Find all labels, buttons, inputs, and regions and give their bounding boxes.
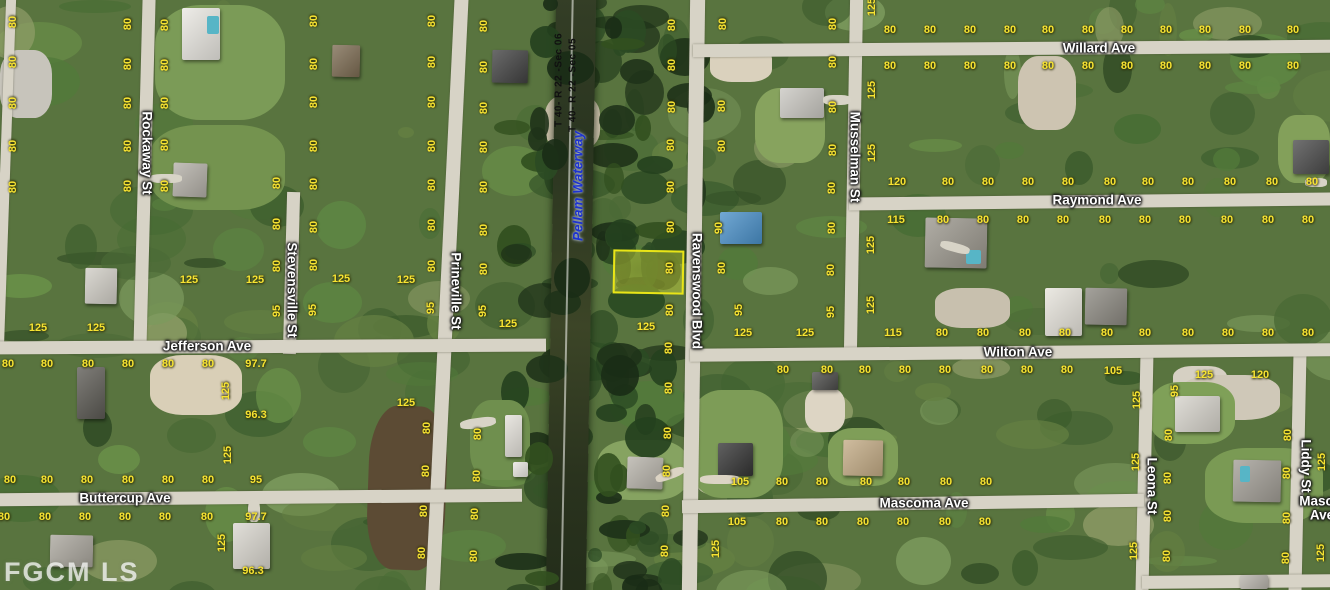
waterway-bank-tree <box>605 17 622 39</box>
lot-dimension-number: 80 <box>426 56 438 68</box>
vegetation-blob <box>668 88 741 140</box>
lot-dimension-number: 80 <box>7 140 19 152</box>
house <box>505 415 522 457</box>
lot-dimension-number: 80 <box>1262 327 1274 339</box>
lot-dimension-number: 125 <box>1128 542 1140 560</box>
vegetation-blob <box>961 563 999 584</box>
lot-dimension-number: 80 <box>1101 327 1113 339</box>
lot-dimension-number: 80 <box>664 304 676 316</box>
lot-dimension-number: 125 <box>222 446 234 464</box>
road-left-edge-road <box>0 0 16 352</box>
lot-dimension-number: 80 <box>1021 364 1033 376</box>
lot-dimension-number: 80 <box>1099 214 1111 226</box>
house <box>233 523 270 569</box>
vegetation-blob <box>603 109 622 138</box>
vegetation-blob <box>497 225 531 267</box>
lot-dimension-number: 80 <box>1004 60 1016 72</box>
vegetation-blob <box>996 420 1069 449</box>
street-label: Mascoma Ave <box>879 496 968 511</box>
lot-dimension-number: 105 <box>1104 365 1122 377</box>
lot-dimension-number: 80 <box>1287 60 1299 72</box>
lot-dimension-number: 80 <box>1262 214 1274 226</box>
vegetation-blob <box>1037 399 1072 431</box>
waterway-bank-tree <box>635 115 651 141</box>
lot-dimension-number: 125 <box>1316 453 1328 471</box>
vegetation-blob <box>1118 260 1189 288</box>
vegetation-blob <box>621 171 669 204</box>
lot-dimension-number: 80 <box>159 180 171 192</box>
vegetation-blob <box>167 418 216 453</box>
lot-dimension-number: 80 <box>777 364 789 376</box>
lot-dimension-number: 80 <box>478 20 490 32</box>
lot-dimension-number: 95 <box>250 474 262 486</box>
lot-dimension-number: 80 <box>426 179 438 191</box>
lot-dimension-number: 80 <box>1017 214 1029 226</box>
vegetation-blob <box>373 315 439 338</box>
lot-dimension-number: 96.3 <box>242 565 263 577</box>
mls-watermark: FGCM LS <box>4 557 140 588</box>
lot-dimension-number: 80 <box>421 422 433 434</box>
lot-dimension-number: 80 <box>964 24 976 36</box>
lot-dimension-number: 125 <box>866 144 878 162</box>
house <box>720 212 762 244</box>
lot-dimension-number: 80 <box>816 516 828 528</box>
lot-dimension-number: 95 <box>477 305 489 317</box>
vegetation-blob <box>65 224 97 269</box>
lot-dimension-number: 120 <box>1251 369 1269 381</box>
lot-dimension-number: 80 <box>308 140 320 152</box>
vegetation-blob <box>1144 556 1217 566</box>
lot-dimension-number: 80 <box>1222 327 1234 339</box>
lot-dimension-number: 80 <box>472 428 484 440</box>
lot-dimension-number: 125 <box>734 327 752 339</box>
house <box>77 367 105 419</box>
lot-dimension-number: 80 <box>664 262 676 274</box>
lot-dimension-number: 80 <box>1282 429 1294 441</box>
waterway-bank-tree <box>599 105 635 135</box>
lot-dimension-number: 125 <box>1130 453 1142 471</box>
lot-dimension-number: 80 <box>202 358 214 370</box>
vegetation-blob <box>649 349 677 386</box>
lot-dimension-number: 125 <box>637 321 655 333</box>
vegetation-blob <box>776 563 861 590</box>
lot-dimension-number: 95 <box>1169 385 1181 397</box>
lot-dimension-number: 80 <box>1062 176 1074 188</box>
lot-dimension-number: 80 <box>308 15 320 27</box>
vegetation-blob <box>119 272 184 325</box>
lot-dimension-number: 80 <box>122 180 134 192</box>
vegetation-blob <box>482 146 547 196</box>
lot-dimension-number: 125 <box>865 236 877 254</box>
vegetation-blob <box>1227 315 1290 332</box>
waterway-bank-tree <box>601 38 645 50</box>
lot-dimension-number: 80 <box>666 59 678 71</box>
section-township-label: T 40- R 22 -Sec 05 <box>568 38 579 132</box>
lot-dimension-number: 95 <box>271 305 283 317</box>
lot-dimension-number: 80 <box>1199 24 1211 36</box>
lot-dimension-number: 80 <box>271 218 283 230</box>
street-label: Leona St <box>1145 457 1160 514</box>
lot-dimension-number: 96.3 <box>245 409 266 421</box>
vegetation-blob <box>377 571 410 590</box>
lot-dimension-number: 125 <box>499 318 517 330</box>
lot-dimension-number: 80 <box>826 182 838 194</box>
vegetation-blob <box>609 196 631 220</box>
lot-dimension-number: 80 <box>308 96 320 108</box>
lot-dimension-number: 80 <box>416 547 428 559</box>
vegetation-blob <box>705 191 761 206</box>
lot-dimension-number: 80 <box>308 221 320 233</box>
vegetation-blob <box>639 531 659 545</box>
vegetation-blob <box>1114 114 1161 144</box>
street-label: Willard Ave <box>1063 41 1135 56</box>
lot-dimension-number: 105 <box>731 476 749 488</box>
street-label: Ave <box>1310 508 1330 523</box>
lot-dimension-number: 80 <box>1162 510 1174 522</box>
lot-dimension-number: 80 <box>1139 327 1151 339</box>
lot-dimension-number: 105 <box>728 516 746 528</box>
lot-dimension-number: 80 <box>159 139 171 151</box>
street-label: Musselman St <box>848 112 863 203</box>
lot-dimension-number: 80 <box>979 516 991 528</box>
lot-dimension-number: 125 <box>1131 391 1143 409</box>
lot-dimension-number: 80 <box>716 262 728 274</box>
vegetation-blob <box>352 576 414 590</box>
vegetation-blob <box>671 181 739 216</box>
vegetation-blob <box>607 515 633 552</box>
vegetation-blob <box>625 70 664 115</box>
lot-dimension-number: 80 <box>666 19 678 31</box>
street-label: Mascoma <box>1299 494 1330 509</box>
lot-dimension-number: 80 <box>1224 176 1236 188</box>
waterway-bank-tree <box>596 404 627 422</box>
vegetation-blob <box>625 89 644 131</box>
lot-dimension-number: 80 <box>1160 24 1172 36</box>
vegetation-blob <box>0 274 52 298</box>
lot-dimension-number: 80 <box>663 382 675 394</box>
vegetation-blob <box>596 342 629 382</box>
lot-dimension-number: 80 <box>426 96 438 108</box>
lot-dimension-number: 80 <box>1142 176 1154 188</box>
lot-dimension-number: 80 <box>39 511 51 523</box>
lot-dimension-number: 80 <box>468 550 480 562</box>
lot-dimension-number: 80 <box>162 358 174 370</box>
lot-dimension-number: 80 <box>827 144 839 156</box>
house <box>1085 288 1128 326</box>
lot-dimension-number: 80 <box>1019 327 1031 339</box>
lot-dimension-number: 80 <box>1182 176 1194 188</box>
vegetation-blob <box>922 397 961 423</box>
lot-dimension-number: 80 <box>666 101 678 113</box>
lot-dimension-number: 80 <box>426 15 438 27</box>
lot-dimension-number: 80 <box>122 58 134 70</box>
lot-dimension-number: 80 <box>665 181 677 193</box>
lot-dimension-number: 80 <box>661 465 673 477</box>
vegetation-blob <box>593 573 612 590</box>
vegetation-blob <box>1033 535 1108 560</box>
house <box>843 440 884 477</box>
lot-dimension-number: 80 <box>884 60 896 72</box>
lot-dimension-number: 80 <box>1121 24 1133 36</box>
vegetation-blob <box>915 383 951 401</box>
lot-dimension-number: 80 <box>2 358 14 370</box>
lot-dimension-number: 80 <box>202 474 214 486</box>
vegetation-blob <box>1012 550 1038 586</box>
lot-dimension-number: 125 <box>397 274 415 286</box>
vegetation-blob <box>611 384 638 409</box>
lot-dimension-number: 115 <box>887 214 905 226</box>
lot-dimension-number: 80 <box>7 16 19 28</box>
vegetation-blob <box>303 282 362 323</box>
ground-patch <box>150 125 285 210</box>
street-label: Wilton Ave <box>984 345 1053 360</box>
swimming-pool <box>1240 466 1250 482</box>
lot-dimension-number: 125 <box>180 274 198 286</box>
lot-dimension-number: 125 <box>216 534 228 552</box>
lot-dimension-number: 120 <box>888 176 906 188</box>
road-jefferson-ave <box>0 339 546 355</box>
lot-dimension-number: 80 <box>1082 60 1094 72</box>
vegetation-blob <box>1225 81 1281 94</box>
lot-dimension-number: 80 <box>1042 24 1054 36</box>
vegetation-blob <box>645 560 713 585</box>
waterway-bank-tree <box>601 355 639 396</box>
vegetation-blob <box>1201 147 1259 169</box>
lot-dimension-number: 80 <box>663 342 675 354</box>
vegetation-blob <box>746 576 822 590</box>
lot-dimension-number: 125 <box>332 273 350 285</box>
vegetation-blob <box>658 558 685 590</box>
vegetation-blob <box>743 267 798 295</box>
lot-dimension-number: 80 <box>308 58 320 70</box>
lot-dimension-number: 80 <box>659 545 671 557</box>
lot-dimension-number: 80 <box>1221 214 1233 226</box>
lot-dimension-number: 80 <box>660 505 672 517</box>
lot-dimension-number: 80 <box>1061 364 1073 376</box>
ground-patch <box>155 5 285 120</box>
lot-dimension-number: 80 <box>1281 512 1293 524</box>
lot-dimension-number: 80 <box>81 474 93 486</box>
lot-dimension-number: 80 <box>1182 327 1194 339</box>
lot-dimension-number: 80 <box>162 474 174 486</box>
waterway-bank-tree <box>630 349 650 376</box>
waterway-label: Pellam Waterway <box>571 131 586 241</box>
waterway-bank-tree <box>613 38 627 56</box>
lot-dimension-number: 97.7 <box>245 358 266 370</box>
vegetation-blob <box>1040 411 1113 445</box>
lot-dimension-number: 97.7 <box>245 511 266 523</box>
lot-dimension-number: 80 <box>41 474 53 486</box>
lot-dimension-number: 80 <box>478 102 490 114</box>
vegetation-blob <box>613 561 647 580</box>
house <box>1240 575 1268 589</box>
lot-dimension-number: 80 <box>1022 176 1034 188</box>
lot-dimension-number: 80 <box>980 476 992 488</box>
lot-dimension-number: 95 <box>307 304 319 316</box>
vegetation-blob <box>213 228 264 271</box>
street-label: Buttercup Ave <box>79 491 170 506</box>
vegetation-blob <box>605 225 622 248</box>
vegetation-blob <box>995 142 1024 159</box>
waterway-bank-tree <box>610 10 646 53</box>
waterway-bank-tree <box>637 156 673 174</box>
lot-dimension-number: 80 <box>1042 60 1054 72</box>
vegetation-blob <box>604 360 652 378</box>
vegetation-blob <box>588 143 638 168</box>
lot-dimension-number: 80 <box>159 19 171 31</box>
house <box>492 50 529 84</box>
lot-dimension-number: 80 <box>478 263 490 275</box>
lot-dimension-number: 80 <box>478 224 490 236</box>
street-label: Raymond Ave <box>1052 193 1141 208</box>
lot-dimension-number: 80 <box>478 181 490 193</box>
lot-dimension-number: 80 <box>1306 176 1318 188</box>
lot-dimension-number: 80 <box>420 465 432 477</box>
lot-dimension-number: 80 <box>816 476 828 488</box>
vegetation-blob <box>301 545 367 571</box>
lot-dimension-number: 80 <box>122 140 134 152</box>
vegetation-blob <box>606 349 629 403</box>
vegetation-blob <box>612 20 660 53</box>
waterway-bank-tree <box>597 343 642 370</box>
lot-dimension-number: 80 <box>159 97 171 109</box>
street-label: Stevensville St <box>285 242 300 337</box>
vegetation-blob <box>1135 0 1165 14</box>
vegetation-blob <box>768 551 827 590</box>
vegetation-blob <box>625 574 662 587</box>
lot-dimension-number: 80 <box>1104 176 1116 188</box>
lot-dimension-number: 80 <box>1179 214 1191 226</box>
lot-dimension-number: 80 <box>1059 327 1071 339</box>
lot-dimension-number: 125 <box>1315 544 1327 562</box>
lot-dimension-number: 80 <box>4 474 16 486</box>
lot-dimension-number: 80 <box>418 505 430 517</box>
ground-patch <box>805 388 845 432</box>
lot-dimension-number: 80 <box>977 214 989 226</box>
lot-dimension-number: 95 <box>425 302 437 314</box>
lot-dimension-number: 80 <box>982 176 994 188</box>
lot-dimension-number: 80 <box>857 516 869 528</box>
lot-dimension-number: 80 <box>1266 176 1278 188</box>
lot-dimension-number: 80 <box>939 364 951 376</box>
vegetation-blob <box>588 548 602 562</box>
lot-dimension-number: 125 <box>796 327 814 339</box>
lot-dimension-number: 80 <box>1239 60 1251 72</box>
lot-dimension-number: 95 <box>733 304 745 316</box>
ground-patch <box>935 288 1010 328</box>
lot-dimension-number: 80 <box>308 259 320 271</box>
lot-dimension-number: 80 <box>426 260 438 272</box>
lot-dimension-number: 80 <box>860 476 872 488</box>
lot-dimension-number: 80 <box>827 101 839 113</box>
waterway-bank-tree <box>606 219 639 252</box>
lot-dimension-number: 125 <box>220 382 232 400</box>
vegetation-blob <box>716 570 787 590</box>
lot-dimension-number: 80 <box>1280 552 1292 564</box>
vegetation-blob <box>494 120 530 135</box>
vegetation-blob <box>610 381 688 431</box>
street-label: Prineville St <box>449 252 464 329</box>
lot-dimension-number: 80 <box>82 358 94 370</box>
lot-dimension-number: 80 <box>1139 214 1151 226</box>
lot-dimension-number: 80 <box>1057 214 1069 226</box>
house <box>718 443 753 476</box>
vegetation-blob <box>398 127 414 138</box>
lot-dimension-number: 80 <box>665 221 677 233</box>
lot-dimension-number: 125 <box>866 81 878 99</box>
vegetation-blob <box>1257 76 1280 99</box>
lot-dimension-number: 80 <box>1004 24 1016 36</box>
vegetation-blob <box>1210 92 1255 135</box>
lot-dimension-number: 80 <box>1302 214 1314 226</box>
vegetation-blob <box>635 404 656 435</box>
lot-dimension-number: 80 <box>471 470 483 482</box>
lot-dimension-number: 80 <box>977 327 989 339</box>
vegetation-blob <box>303 427 356 457</box>
vegetation-blob <box>98 445 140 474</box>
lot-dimension-number: 80 <box>1239 24 1251 36</box>
vegetation-blob <box>1100 263 1119 284</box>
vegetation-blob <box>909 139 962 152</box>
lot-dimension-number: 80 <box>122 18 134 30</box>
lot-dimension-number: 80 <box>776 476 788 488</box>
lot-dimension-number: 80 <box>899 364 911 376</box>
vegetation-blob <box>59 0 131 13</box>
lot-dimension-number: 80 <box>859 364 871 376</box>
lot-dimension-number: 80 <box>884 24 896 36</box>
vegetation-blob <box>506 584 540 590</box>
vegetation-blob <box>596 231 610 261</box>
vegetation-blob <box>1020 516 1070 533</box>
vegetation-blob <box>117 216 186 262</box>
vegetation-blob <box>604 128 659 171</box>
lot-dimension-number: 80 <box>1160 60 1172 72</box>
vegetation-blob <box>590 16 635 29</box>
vegetation-blob <box>613 5 669 29</box>
lot-dimension-number: 80 <box>41 358 53 370</box>
street-label: Liddy St <box>1299 439 1314 492</box>
lot-dimension-number: 80 <box>7 56 19 68</box>
lot-dimension-number: 80 <box>79 511 91 523</box>
waterway-bank-tree <box>629 521 646 534</box>
street-label: Ravenswood Blvd <box>690 233 705 349</box>
lot-dimension-number: 80 <box>716 140 728 152</box>
lot-dimension-number: 80 <box>478 61 490 73</box>
lot-dimension-number: 80 <box>122 97 134 109</box>
lot-dimension-number: 80 <box>1163 429 1175 441</box>
swimming-pool <box>207 16 219 34</box>
lot-dimension-number: 125 <box>710 540 722 558</box>
vegetation-blob <box>604 163 624 194</box>
vegetation-blob <box>635 579 663 590</box>
vegetation-blob <box>896 537 951 585</box>
vegetation-blob <box>184 258 226 268</box>
lot-dimension-number: 80 <box>662 427 674 439</box>
vegetation-blob <box>505 243 536 260</box>
waterway-bank-tree <box>622 575 648 590</box>
lot-dimension-number: 80 <box>897 516 909 528</box>
lot-dimension-number: 80 <box>308 178 320 190</box>
street-label: Rockaway St <box>140 111 155 194</box>
lot-dimension-number: 95 <box>825 306 837 318</box>
lot-dimension-number: 80 <box>478 141 490 153</box>
lot-dimension-number: 90 <box>713 222 725 234</box>
road-willard-ave <box>693 40 1330 57</box>
street-label: Jefferson Ave <box>163 339 251 354</box>
lot-dimension-number: 80 <box>898 476 910 488</box>
lot-dimension-number: 80 <box>1287 24 1299 36</box>
lot-dimension-number: 125 <box>246 274 264 286</box>
